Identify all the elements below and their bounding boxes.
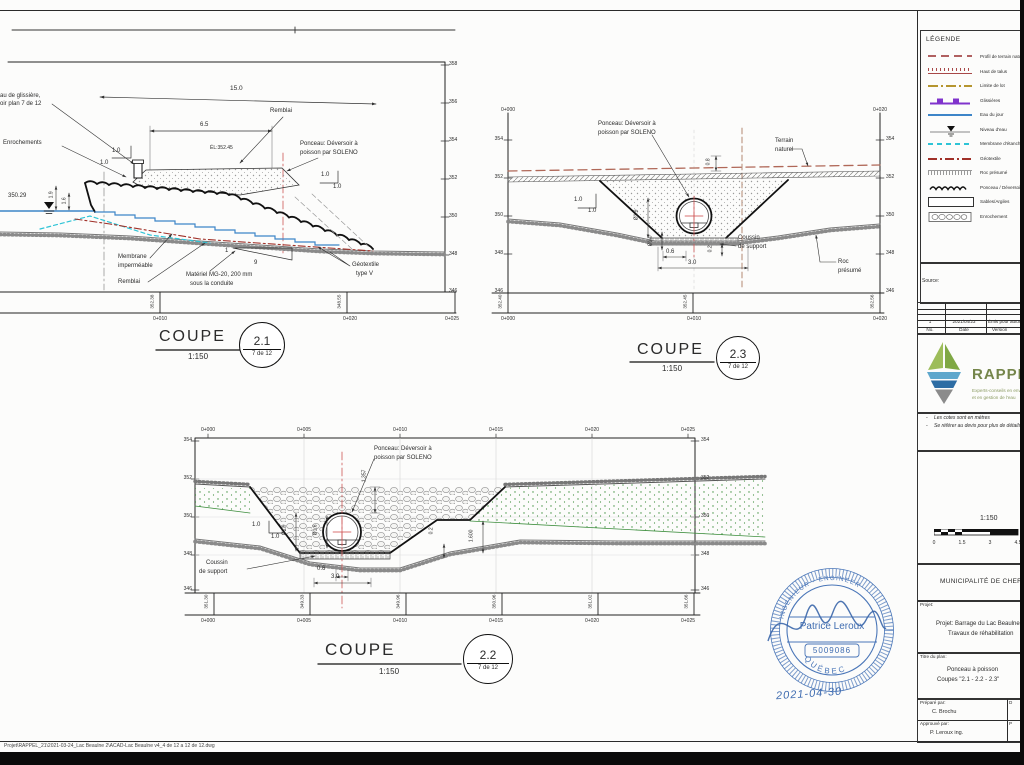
c21-elev: 348: [449, 252, 457, 258]
ponceau-swatch-icon: [928, 183, 972, 193]
c22-station-top: 0+025: [681, 428, 695, 434]
eau-du-jour-swatch-icon: [928, 114, 972, 116]
c23-elev-right: 350: [886, 213, 894, 219]
c23-datum: 352.56: [869, 295, 874, 309]
c23-elev-right: 348: [886, 251, 894, 257]
glissieres-swatch-icon: [928, 96, 972, 106]
c22-dia-in: Ø1.6: [314, 524, 320, 535]
source-label: Source:: [922, 279, 939, 285]
c23-elev-right: 352: [886, 175, 894, 181]
c21-dim-1-6: 1.6: [63, 197, 69, 204]
c22-bubble-sheet: 7 de 12: [478, 664, 498, 671]
c23-bubble: 2.3 7 de 12: [716, 336, 760, 380]
c21-scale: 1:150: [188, 352, 208, 361]
c23-ponceau-label-2: poisson par SOLENO: [598, 130, 656, 137]
c23-station-top: 0+020: [873, 108, 887, 114]
legend-item-label: Sables/Argiles: [980, 199, 1009, 204]
c22-elev-left: 350: [172, 514, 192, 520]
c21-elev: 358: [449, 62, 457, 68]
c22-scale: 1:150: [379, 667, 399, 676]
glissiere-post: [134, 163, 142, 178]
c21-datum: 352.38: [149, 295, 154, 309]
c23-scale: 1:150: [662, 364, 682, 373]
c23-terrain-label-2: naturel: [775, 147, 793, 154]
c22-elev-left: 352: [172, 476, 192, 482]
c22-datum: 349.33: [299, 595, 304, 609]
legend-item-label: Membrane d'étanchéité: [980, 141, 1024, 146]
rev-no: 1: [929, 319, 932, 324]
note-1: Les cotes sont en mètres: [934, 416, 990, 422]
c23-coussin-label-2: de support: [738, 244, 766, 251]
c21-datum: 348.55: [336, 295, 341, 309]
c22-datum: 351.66: [683, 595, 688, 609]
c23-elev-left: 348: [483, 251, 503, 257]
c21-remblai-label: Remblai: [270, 108, 292, 115]
scalebar-tick: 0: [933, 541, 936, 547]
c22-elev-left: 354: [172, 438, 192, 444]
c23-slope-1: 1.0: [574, 197, 582, 204]
c21-el-crest: ÉL:352.45: [210, 146, 233, 152]
c21-geotextile-label-2: type V: [356, 271, 373, 278]
niveau-eau-swatch-icon: [928, 125, 972, 135]
c22-station: 0+020: [585, 619, 599, 625]
rappel-logo-icon: [924, 338, 966, 406]
stamp-number: 5009086: [813, 646, 851, 655]
legend-item-label: Roc présumé: [980, 170, 1007, 175]
c22-station-top: 0+000: [201, 428, 215, 434]
c22-elev-right: 352: [701, 476, 709, 482]
legend-item-label: Niveau d'eau: [980, 127, 1007, 132]
note-2: Se référer au devis pour plus de détails: [934, 424, 1021, 430]
sig-col-p: P: [1009, 721, 1012, 726]
c23-bubble-number: 2.3: [720, 347, 756, 363]
coupe23-linework: [492, 113, 884, 362]
c22-slope-1: 1.0: [252, 522, 260, 529]
c23-dim-0-6: 0.6: [666, 249, 674, 256]
c21-bubble-sheet: 7 de 12: [252, 350, 272, 357]
c21-water-level: 350.29: [8, 193, 26, 200]
c21-elev: 350: [449, 214, 457, 220]
c23-ponceau-label-1: Ponceau: Déversoir à: [598, 121, 656, 128]
c22-dim-1357: 1.357: [362, 470, 368, 483]
c22-dim-0-6: 0.6: [317, 566, 325, 573]
c23-elev-right: 354: [886, 137, 894, 143]
c21-geotextile-label-1: Géotextile: [352, 262, 379, 269]
c21-glissiere-note-2: oir plan 7 de 12: [0, 101, 41, 108]
c23-terrain-label-1: Terrain: [775, 138, 793, 145]
terrain-naturel-swatch-icon: [928, 55, 972, 57]
rev-col-no: No.: [926, 327, 933, 332]
approved-label: Approuvé par:: [920, 721, 949, 726]
legend-item-label: Enrochement: [980, 214, 1007, 219]
water-level-icon: [44, 202, 54, 209]
c21-elev: 356: [449, 100, 457, 106]
plan-title-line-2: Coupes "2.1 - 2.2 - 2.3": [937, 677, 999, 684]
legend-box: LÉGENDE: [920, 30, 1024, 264]
c21-station: 0+025: [445, 317, 459, 323]
c21-remblai2-label: Remblai: [118, 279, 140, 286]
coupe21-linework: [0, 27, 456, 350]
c21-mg20-label-2: sous la conduite: [190, 281, 233, 288]
legend-title: LÉGENDE: [926, 36, 961, 43]
bedding: [300, 551, 390, 559]
c21-title: COUPE: [159, 328, 226, 346]
bottom-edge: [0, 752, 1024, 765]
legend-item-label: Eau du jour: [980, 112, 1004, 117]
c21-slope-a1: 1.0: [112, 148, 120, 155]
right-edge: [1020, 0, 1024, 765]
c21-mg20-label-1: Matériel MG-20, 200 mm: [186, 272, 252, 279]
c22-station-top: 0+020: [585, 428, 599, 434]
c22-dia-out: Ø1.9: [283, 524, 289, 535]
c23-station: 0+020: [873, 317, 887, 323]
c23-bubble-sheet: 7 de 12: [728, 363, 748, 370]
c21-membrane-label-2: imperméable: [118, 263, 153, 270]
c23-dim-3-0: 3.0: [688, 260, 696, 267]
c22-elev-left: 346: [172, 587, 192, 593]
legend-item-label: Géotextile: [980, 156, 1001, 161]
c23-roc-label-2: présumé: [838, 268, 861, 275]
c21-dim-15-0: 15.0: [230, 85, 243, 92]
project-label: Projet:: [920, 602, 933, 607]
legend-item-label: Profil de terrain naturel: [980, 54, 1024, 59]
stamp-name: Patrice Leroux: [800, 621, 864, 633]
c23-elev-right: 346: [886, 289, 894, 295]
c22-dim-0-2: 0.2: [430, 527, 436, 534]
c23-elev-left: 350: [483, 213, 503, 219]
c21-slope-a2: 1.0: [100, 160, 108, 167]
scalebar-icon: [934, 529, 1024, 538]
c23-dia-bed: Ø1.0: [649, 235, 655, 246]
c22-coussin-label-1: Coussin: [206, 560, 228, 567]
c23-slope-2: 1.0: [588, 208, 596, 215]
c23-coussin-label-1: Coussin: [738, 235, 760, 242]
c21-elev: 346: [449, 289, 457, 295]
c22-dim-1600: 1.600: [469, 530, 475, 543]
c23-title: COUPE: [637, 341, 704, 359]
note-bullet: -: [926, 424, 928, 430]
c21-station: 0+010: [153, 317, 167, 323]
c22-datum: 351.30: [203, 595, 208, 609]
c21-bubble: 2.1 7 de 12: [239, 322, 285, 368]
membrane-swatch-icon: [928, 143, 972, 145]
c21-elev: 352: [449, 176, 457, 182]
file-path: Projet\RAPPEL_21\2021-03-24_Lac Beaulne …: [4, 744, 215, 750]
logo-tagline-1: Experts-conseils en environnement: [972, 388, 1024, 393]
c22-station: 0+025: [681, 619, 695, 625]
c21-dim-6-5: 6.5: [200, 122, 208, 129]
c23-station: 0+000: [501, 317, 515, 323]
legend-item-label: Ponceau / Déversoir: [980, 185, 1022, 190]
c22-station: 0+010: [393, 619, 407, 625]
c22-elev-right: 350: [701, 514, 709, 520]
c21-bubble-number: 2.1: [243, 334, 281, 350]
municipality-name: MUNICIPALITÉ DE CHERTSEY: [940, 578, 1024, 585]
c21-elev: 354: [449, 138, 457, 144]
legend-item-label: Limite de lot: [980, 83, 1005, 88]
legend-item-label: Glissières: [980, 98, 1000, 103]
c23-roc-label-1: Roc: [838, 259, 849, 266]
c21-station: 0+020: [343, 317, 357, 323]
sables-argiles-swatch-icon: [928, 197, 974, 207]
logo-tagline-2: et en gestion de l'eau: [972, 395, 1016, 400]
c23-elev-left: 352: [483, 175, 503, 181]
c22-station-top: 0+005: [297, 428, 311, 434]
c22-dim-3-0: 3.0: [331, 574, 339, 581]
c21-membrane-label-1: Membrane: [118, 254, 147, 261]
c22-station: 0+000: [201, 619, 215, 625]
plan-title-line-1: Ponceau à poisson: [947, 667, 998, 674]
note-bullet: -: [926, 416, 928, 422]
c22-bubble-number: 2.2: [467, 648, 508, 664]
c22-elev-right: 354: [701, 438, 709, 444]
frame-top: [0, 10, 1024, 11]
c23-dim-0-8: 0.8: [707, 158, 713, 165]
c22-elev-right: 346: [701, 587, 709, 593]
c22-station-top: 0+015: [489, 428, 503, 434]
c23-station: 0+010: [687, 317, 701, 323]
prepared-label: Préparé par:: [920, 700, 946, 705]
sig-col-d: D: [1009, 700, 1012, 705]
c23-dia-pipe: Ø1.9: [635, 209, 641, 220]
c21-slope-b1: 1.0: [321, 172, 329, 179]
c23-station-top: 0+000: [501, 108, 515, 114]
c22-coussin-label-2: de support: [199, 569, 227, 576]
c22-ponceau-label-1: Ponceau: Déversoir à: [374, 446, 432, 453]
c21-slope19-9: 9: [254, 260, 257, 267]
project-line-2: Travaux de réhabilitation: [948, 631, 1013, 638]
c22-station: 0+015: [489, 619, 503, 625]
c21-slope19-1: 1: [225, 248, 228, 255]
c22-elev-left: 348: [172, 552, 192, 558]
c21-glissiere-note-1: au de glissière,: [0, 93, 40, 100]
c22-station-top: 0+010: [393, 428, 407, 434]
rev-desc: Émis pour autorisation: [988, 319, 1024, 324]
geotextile-swatch-icon: [928, 158, 972, 160]
enrochement-swatch-icon: [928, 212, 972, 222]
c22-bubble: 2.2 7 de 12: [463, 634, 513, 684]
c22-title: COUPE: [325, 640, 395, 660]
c22-datum: 351.02: [587, 595, 592, 609]
plan-title-label: Titre du plan:: [920, 654, 947, 659]
project-line-1: Projet: Barrage du Lac Beaulne: [936, 621, 1020, 628]
c21-dim-1-9: 1.9: [50, 191, 56, 198]
roc-presume-swatch-icon: [928, 170, 972, 176]
rev-col-date: Date: [959, 327, 969, 332]
coupe22-linework: [185, 434, 765, 664]
c22-slope-2: 1.0: [271, 534, 279, 541]
c21-slope-b2: 1.0: [333, 184, 341, 191]
prepared-by: C. Brochu: [932, 709, 956, 715]
c23-datum: 352.45: [682, 295, 687, 309]
scalebar-ratio: 1:150: [980, 515, 998, 523]
c21-ponceau-label-1: Ponceau: Déversoir à: [300, 141, 358, 148]
legend-item-label: Haut de talus: [980, 69, 1007, 74]
c21-ponceau-label-2: poisson par SOLENO: [300, 150, 358, 157]
c22-ponceau-label-2: poisson par SOLENO: [374, 455, 432, 462]
haut-talus-swatch-icon: [928, 68, 972, 74]
logo-name: RAPPEL: [972, 366, 1024, 383]
rev-col-version: Version: [992, 327, 1007, 332]
c22-datum: 350.96: [491, 595, 496, 609]
c21-enrochements-label: Enrochements: [3, 140, 42, 147]
scalebar-tick: 1.5: [959, 541, 966, 547]
c22-station: 0+005: [297, 619, 311, 625]
approved-by: P. Leroux ing.: [930, 730, 963, 736]
c23-elev-left: 354: [483, 137, 503, 143]
rev-date: 2021/04/23: [953, 319, 976, 324]
c22-elev-right: 348: [701, 552, 709, 558]
c22-datum: 349.96: [395, 595, 400, 609]
frame-bottom: [0, 741, 1024, 742]
limite-lot-swatch-icon: [928, 85, 972, 87]
scale-box: [917, 450, 1024, 565]
c23-dim-0-2: 0.2: [709, 245, 715, 252]
c23-datum: 352.40: [497, 295, 502, 309]
drawing-linework: INGÉNIEUR - ENGINEER QUÉBEC: [0, 0, 1024, 765]
drawing-sheet: INGÉNIEUR - ENGINEER QUÉBEC au de glissi…: [0, 0, 1024, 765]
scalebar-tick: 3: [989, 541, 992, 547]
